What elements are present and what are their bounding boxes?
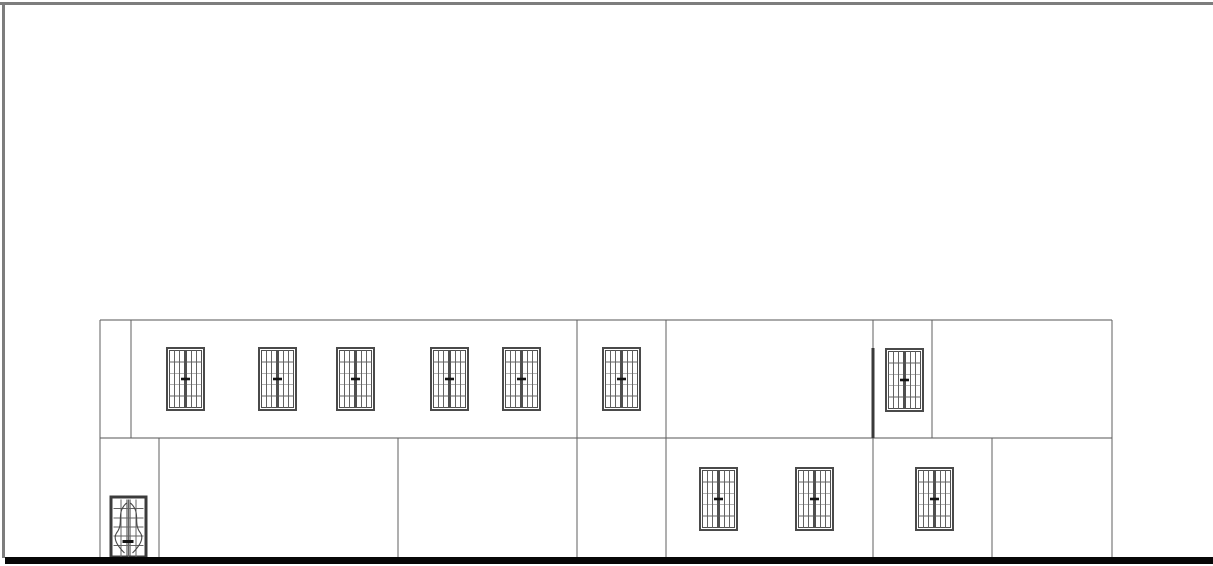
lower-window-2 bbox=[796, 468, 833, 530]
window-handle bbox=[351, 378, 360, 381]
upper-window-3 bbox=[337, 348, 374, 410]
window-handle bbox=[900, 379, 909, 382]
upper-window-7 bbox=[886, 349, 923, 411]
elevation-sheet bbox=[0, 0, 1213, 566]
window-handle bbox=[714, 498, 723, 501]
window-handle bbox=[181, 378, 190, 381]
window-handle bbox=[930, 498, 939, 501]
sheet-background bbox=[0, 0, 1213, 566]
page-border-top bbox=[0, 2, 1213, 5]
page-border-left bbox=[2, 2, 5, 558]
window-handle bbox=[445, 378, 454, 381]
upper-window-4 bbox=[431, 348, 468, 410]
ground-line bbox=[5, 557, 1213, 564]
lower-window-3 bbox=[916, 468, 953, 530]
door-handle bbox=[123, 540, 134, 543]
upper-window-2 bbox=[259, 348, 296, 410]
upper-window-1 bbox=[167, 348, 204, 410]
lower-window-1 bbox=[700, 468, 737, 530]
upper-window-6 bbox=[603, 348, 640, 410]
elevation-drawing bbox=[0, 0, 1213, 566]
window-handle bbox=[517, 378, 526, 381]
entry-door bbox=[111, 497, 146, 557]
window-handle bbox=[273, 378, 282, 381]
window-handle bbox=[617, 378, 626, 381]
upper-window-5 bbox=[503, 348, 540, 410]
window-handle bbox=[810, 498, 819, 501]
